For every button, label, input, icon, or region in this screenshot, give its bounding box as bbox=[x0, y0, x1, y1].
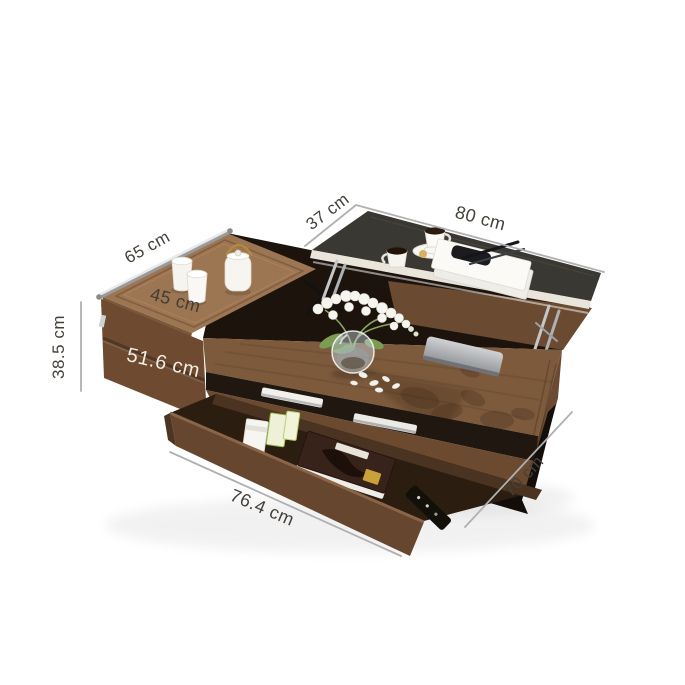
label-top-length: 80 cm bbox=[453, 202, 508, 235]
coffee-table-illustration: 37 cm 80 cm 65 cm 45 cm 38.5 cm 51.6 cm … bbox=[0, 0, 685, 685]
cookie bbox=[419, 250, 427, 258]
orchid-bud bbox=[414, 332, 418, 336]
orchid-bud bbox=[408, 326, 413, 331]
vase-soil bbox=[341, 357, 365, 369]
product-dimension-figure: 37 cm 80 cm 65 cm 45 cm 38.5 cm 51.6 cm … bbox=[0, 0, 685, 685]
coffee-cup-1-coffee bbox=[387, 247, 407, 254]
label-height: 38.5 cm bbox=[49, 315, 68, 379]
